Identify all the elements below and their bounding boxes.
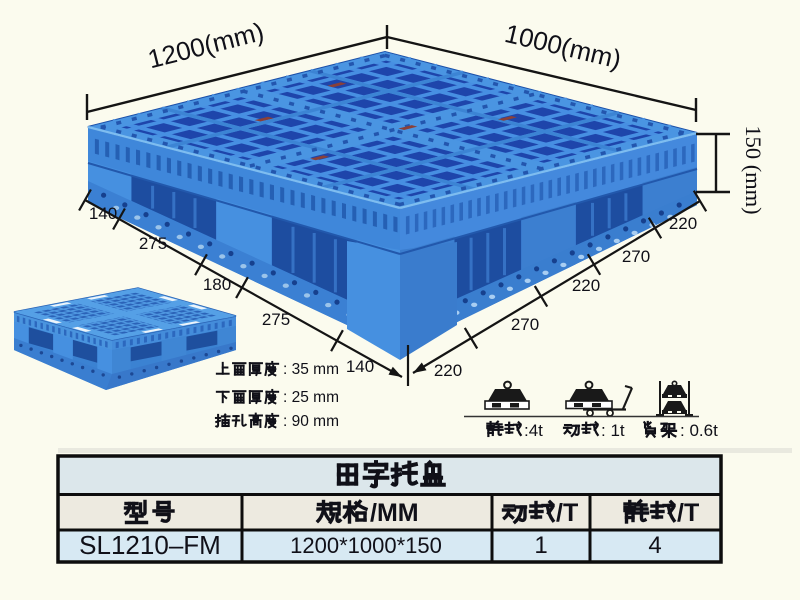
svg-text:180: 180	[203, 275, 231, 294]
svg-text:220: 220	[434, 361, 462, 380]
svg-text:150 (mm): 150 (mm)	[741, 125, 766, 214]
svg-text:/T: /T	[556, 499, 578, 527]
svg-text:275: 275	[262, 310, 290, 329]
svg-text:: 90 mm: : 90 mm	[283, 413, 339, 430]
svg-text:: 1t: : 1t	[601, 421, 625, 440]
svg-text:140: 140	[346, 357, 374, 376]
svg-text:: 25 mm: : 25 mm	[283, 389, 339, 406]
svg-text:270: 270	[511, 315, 539, 334]
svg-text:220: 220	[669, 214, 697, 233]
svg-text:: 0.6t: : 0.6t	[680, 421, 718, 440]
svg-text:/MM: /MM	[370, 499, 419, 527]
svg-text:270: 270	[622, 247, 650, 266]
svg-text:: 35 mm: : 35 mm	[283, 361, 339, 378]
svg-text:4: 4	[648, 532, 661, 559]
svg-text:1200*1000*150: 1200*1000*150	[290, 533, 442, 558]
svg-text:1: 1	[534, 532, 547, 559]
svg-text:SL1210–FM: SL1210–FM	[79, 530, 221, 560]
svg-text:275: 275	[139, 234, 167, 253]
svg-text:140: 140	[89, 204, 117, 223]
svg-text::4t: :4t	[524, 421, 543, 440]
svg-text:220: 220	[572, 276, 600, 295]
svg-text:/T: /T	[677, 499, 699, 527]
